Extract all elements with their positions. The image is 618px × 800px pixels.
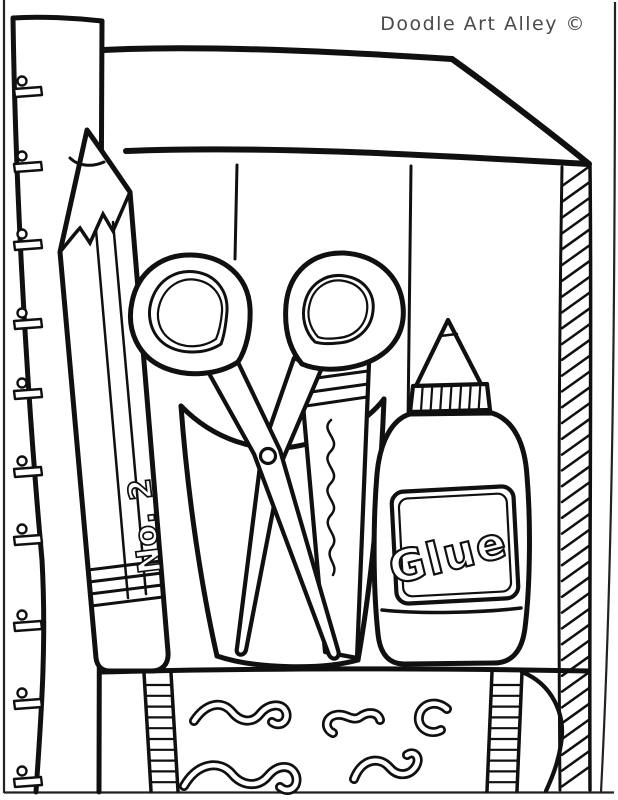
box-hatch-line	[562, 419, 590, 439]
glue-cap-stripe	[469, 387, 471, 409]
box-hatching	[562, 166, 590, 786]
shelf-edge	[100, 669, 589, 672]
crayon-left-band-edge	[171, 673, 178, 791]
box-hatch-line	[562, 229, 590, 249]
ruler-tick-bar	[14, 777, 42, 787]
box-hatch-line	[562, 529, 590, 549]
ruler-tick-hole	[18, 457, 27, 466]
box-hatch-line	[562, 672, 590, 692]
box-lid-bottom-edge	[126, 149, 588, 164]
ruler-tick-bar	[14, 319, 42, 329]
ruler-tick-bar	[14, 87, 42, 97]
box-hatch-line	[562, 719, 590, 739]
glue-bottle: Glue	[374, 320, 529, 664]
ruler-tick-hole	[18, 152, 27, 161]
box-hatch-line	[562, 514, 590, 534]
scissors-pivot	[261, 449, 276, 464]
box-hatch-line	[562, 766, 590, 786]
ruler-tick-hole	[18, 379, 27, 388]
box-top-slope	[452, 59, 589, 164]
box-seam-left	[235, 165, 237, 259]
box-side-strip-left-edge	[559, 167, 562, 790]
box-hatch-line	[562, 340, 590, 360]
box-hatch-line	[562, 498, 590, 518]
cup-left-wall	[181, 406, 217, 656]
box-hatch-line	[562, 403, 590, 423]
crayon-squiggles	[184, 704, 447, 790]
border-right	[601, 2, 615, 792]
box-hatch-line	[562, 182, 590, 202]
crayon-rounded-end	[522, 672, 562, 791]
ruler-tick-bar	[14, 389, 42, 399]
ruler-tick-hole	[18, 77, 27, 86]
box-hatch-line	[562, 687, 590, 707]
glue-cap-stripe	[479, 387, 481, 409]
glue-cap-stripe	[460, 387, 462, 409]
box-hatch-line	[562, 387, 590, 407]
ruler-tick-bar	[14, 240, 42, 250]
ruler-tick-bar	[14, 699, 42, 709]
box-hatch-line	[562, 166, 590, 186]
box-hatch-line	[562, 608, 590, 628]
glue-cap-stripe	[421, 387, 423, 409]
box-hatch-line	[562, 292, 590, 312]
ruler-tick-hole	[18, 767, 27, 776]
box-hatch-line	[562, 245, 590, 265]
box-hatch-line	[562, 450, 590, 470]
box-top-edge	[103, 48, 452, 59]
glue-cap-stripe	[431, 387, 433, 409]
box-hatch-line	[562, 640, 590, 660]
box-hatch-line	[562, 277, 590, 297]
ruler-tick-bar	[14, 621, 42, 631]
ruler-tick-hole	[18, 689, 27, 698]
ruler-tick-hole	[18, 611, 27, 620]
glue-nozzle-tip	[415, 320, 482, 388]
pencil: No. 2	[60, 130, 169, 671]
box-hatch-line	[562, 213, 590, 233]
box-hatch-line	[562, 308, 590, 328]
ruler-tick-hole	[18, 525, 27, 534]
ruler-tick-bar	[14, 467, 42, 477]
box-seam-right	[408, 166, 411, 423]
glue-cap-stripe	[450, 387, 452, 409]
box-hatch-line	[562, 435, 590, 455]
box-hatch-line	[562, 624, 590, 644]
box-hatch-line	[562, 371, 590, 391]
ruler-tick-bar	[14, 162, 42, 172]
ruler-left-edge	[13, 18, 44, 792]
crayon-right-band-edge	[517, 672, 522, 791]
ruler-tick-bar	[14, 535, 42, 545]
coloring-page: Doodle Art Alley ©	[0, 0, 618, 800]
box-hatch-line	[562, 261, 590, 281]
box-hatch-line	[562, 735, 590, 755]
box-hatch-line	[562, 561, 590, 581]
box-hatch-line	[562, 751, 590, 771]
artist-credit: Doodle Art Alley ©	[380, 13, 586, 35]
box-hatch-line	[562, 703, 590, 723]
box-hatch-line	[562, 545, 590, 565]
glue-cap-stripe	[440, 387, 442, 409]
box-hatch-line	[562, 198, 590, 218]
ruler-top-edge	[13, 17, 102, 21]
box-hatch-line	[562, 324, 590, 344]
box-hatch-line	[562, 356, 590, 376]
box-hatch-line	[562, 466, 590, 486]
box-hatch-line	[562, 577, 590, 597]
ruler-tick-hole	[18, 309, 27, 318]
crayon-right-band-edge	[487, 672, 492, 791]
box-hatch-line	[562, 482, 590, 502]
crayon	[144, 672, 562, 791]
box-hatch-line	[562, 593, 590, 613]
ruler-tick-hole	[18, 230, 27, 239]
crayon-left-band-edge	[144, 673, 151, 791]
